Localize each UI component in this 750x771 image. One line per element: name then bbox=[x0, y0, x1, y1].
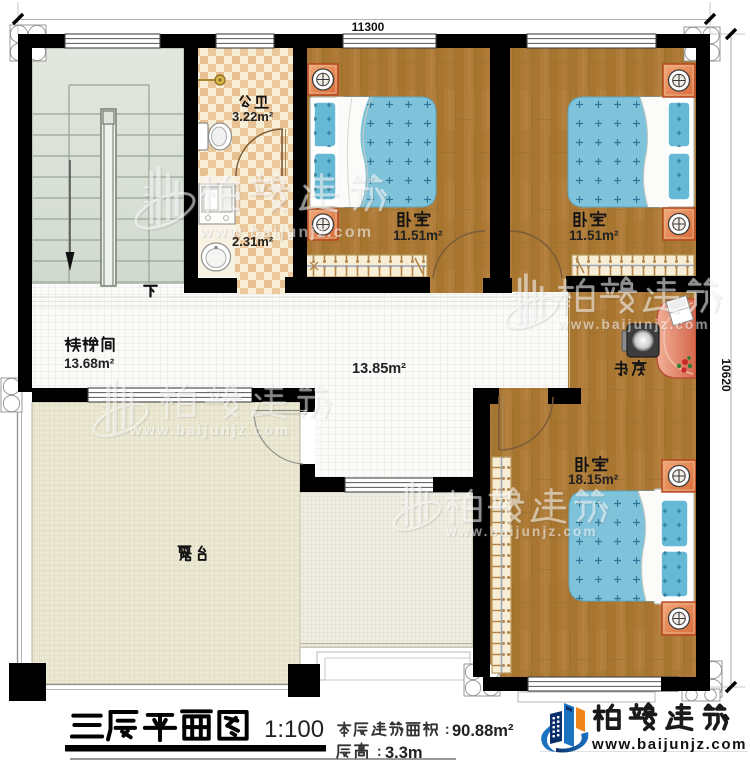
svg-text:90.88m²: 90.88m² bbox=[452, 722, 514, 740]
svg-text:www.baijunjz.com: www.baijunjz.com bbox=[199, 224, 373, 241]
svg-text:www.baijunjz.com: www.baijunjz.com bbox=[591, 736, 747, 753]
svg-text:11.51m²: 11.51m² bbox=[569, 228, 619, 243]
svg-text:3.3m: 3.3m bbox=[385, 744, 423, 762]
svg-text:18.15m²: 18.15m² bbox=[568, 472, 619, 487]
svg-text:11.51m²: 11.51m² bbox=[393, 228, 443, 243]
svg-text:1:100: 1:100 bbox=[264, 716, 324, 743]
svg-text:www.baijunjz.com: www.baijunjz.com bbox=[557, 317, 710, 332]
svg-text:3.22m²: 3.22m² bbox=[232, 109, 274, 124]
svg-text:13.85m²: 13.85m² bbox=[352, 361, 406, 377]
svg-text:13.68m²: 13.68m² bbox=[64, 356, 115, 371]
svg-text:www.baijunjz.com: www.baijunjz.com bbox=[129, 423, 290, 439]
svg-text:11300: 11300 bbox=[352, 20, 385, 34]
svg-text:10620: 10620 bbox=[719, 358, 733, 392]
svg-text:www.baijunjz.com: www.baijunjz.com bbox=[445, 524, 598, 539]
